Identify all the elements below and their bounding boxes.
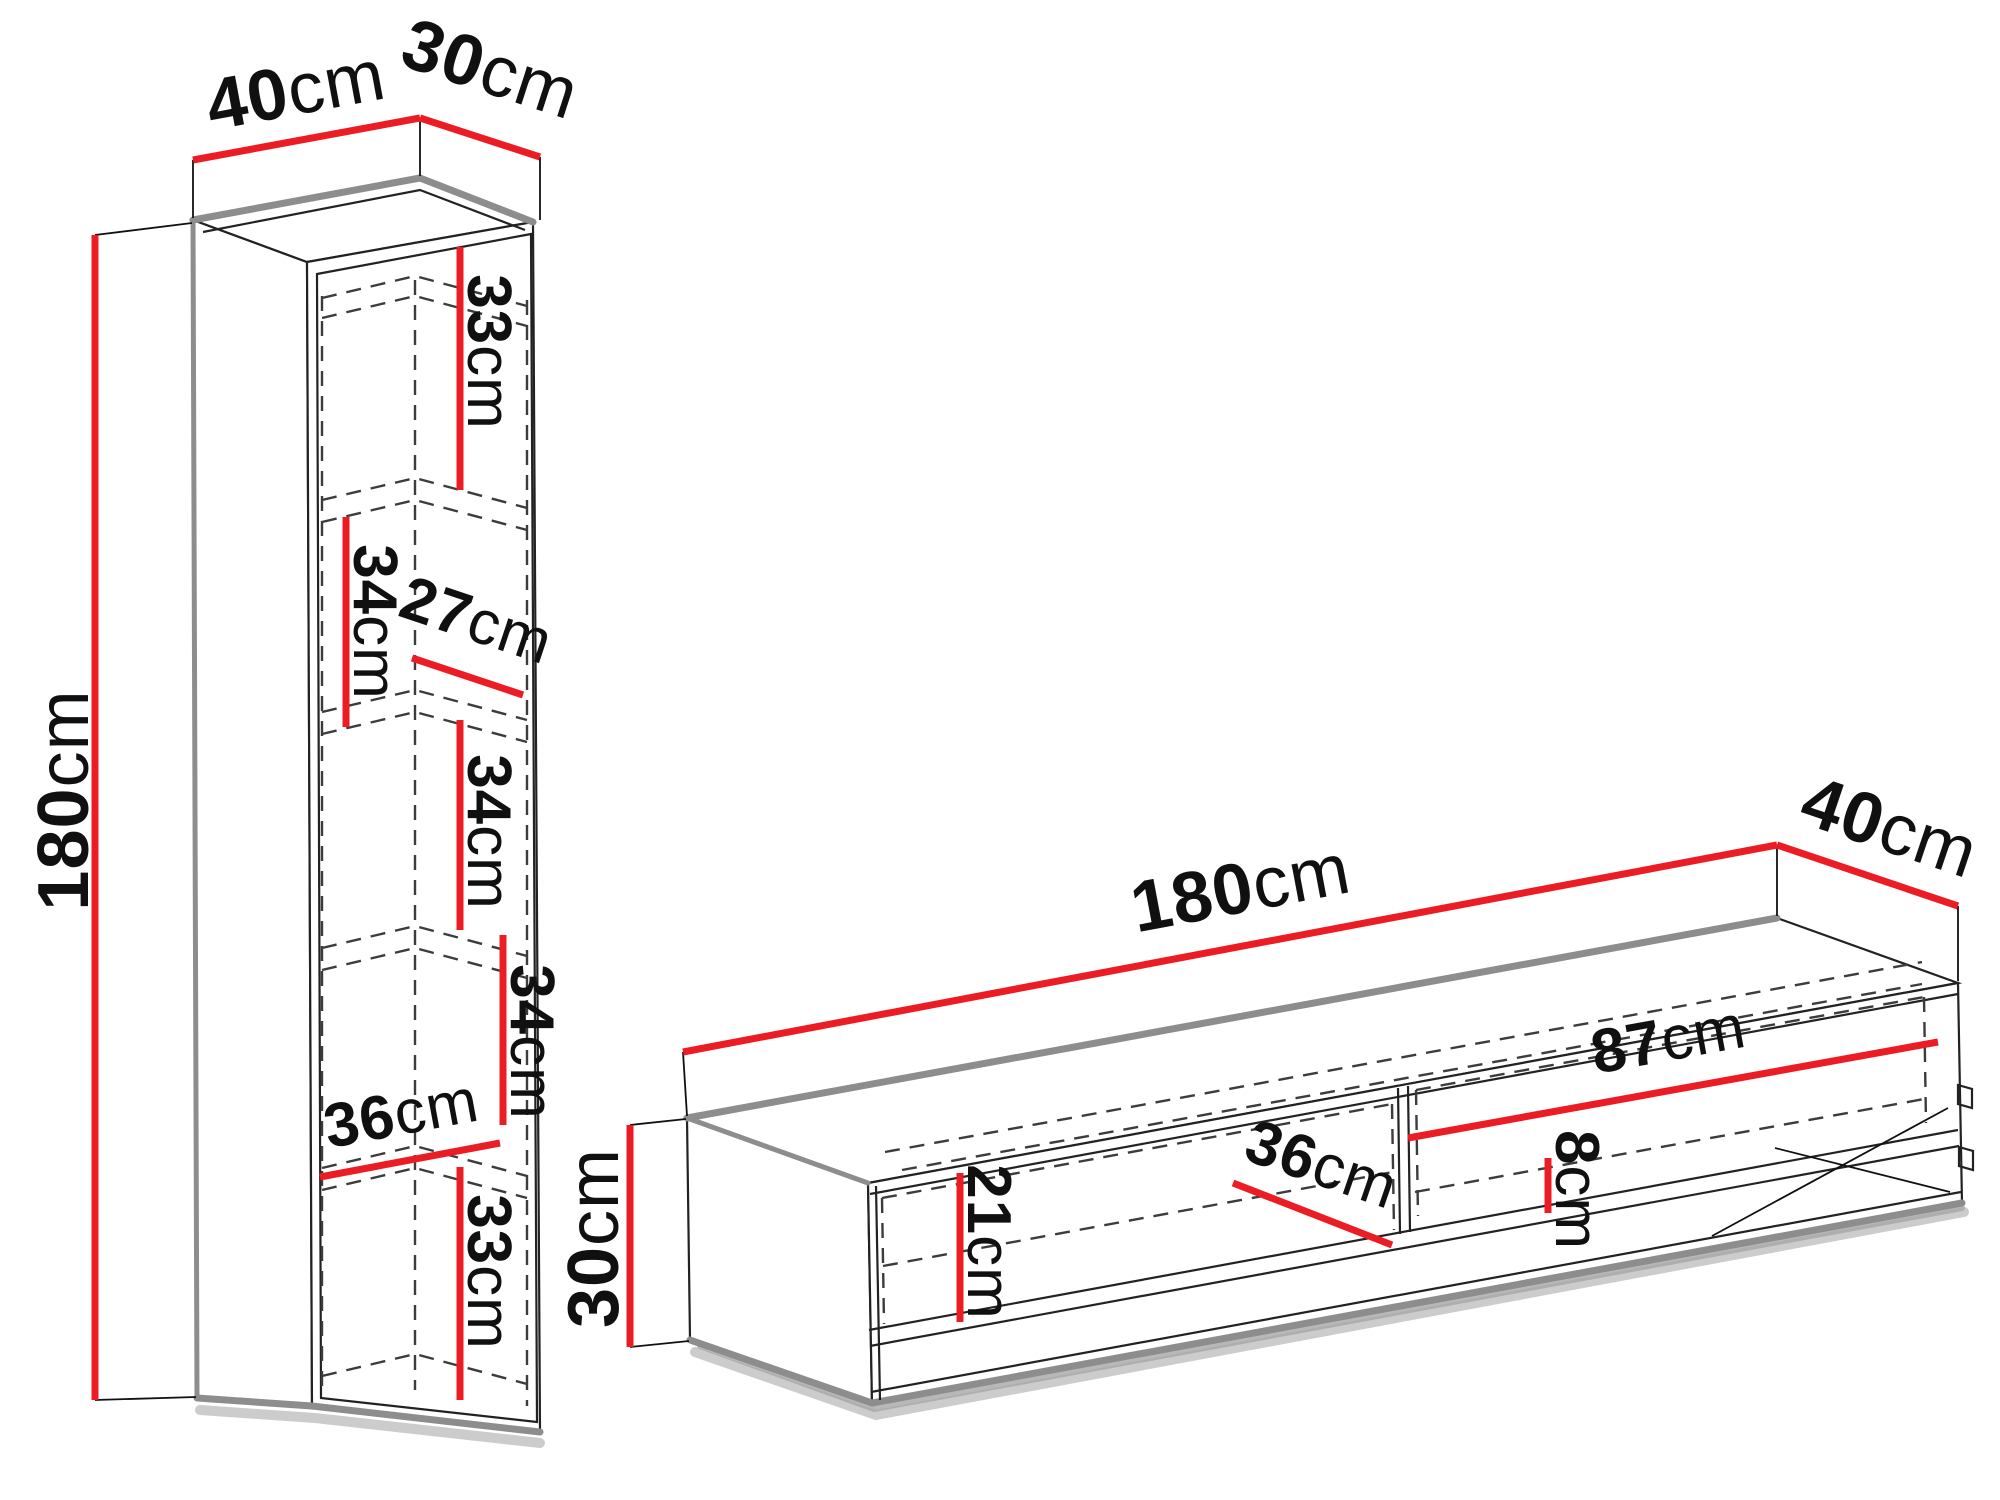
tv-height-label: 30cm <box>554 1148 634 1328</box>
cabinet-left-side-panel <box>193 220 312 1406</box>
cabinet-compartment-1-label: 33cm <box>454 274 523 430</box>
furniture-dimensions-diagram: 40cm 30cm 180cm 33cm 34cm 27cm 34cm 34cm… <box>0 0 2000 1500</box>
cabinet-height-tick-bottom <box>95 1397 196 1400</box>
cabinet-depth-dimension-line <box>420 118 540 157</box>
cabinet-compartment-4-label: 34cm <box>497 964 566 1120</box>
tv-height-tick-top <box>630 1119 686 1125</box>
diagram-canvas: 40cm 30cm 180cm 33cm 34cm 27cm 34cm 34cm… <box>0 0 2000 1500</box>
tv-stand-drawing: 180cm 40cm 30cm 87cm 8cm 36cm 21cm <box>554 761 1988 1415</box>
cabinet-height-tick-top <box>95 223 192 235</box>
tall-cabinet-drawing: 40cm 30cm 180cm 33cm 34cm 27cm 34cm 34cm… <box>24 3 588 1443</box>
tv-niche-height-label: 21cm <box>954 1164 1023 1320</box>
cabinet-height-label: 180cm <box>24 689 104 910</box>
tv-width-tick-left <box>683 1052 687 1116</box>
tv-height-tick-bottom <box>630 1341 689 1347</box>
tv-slot-height-label: 8cm <box>1542 1130 1611 1250</box>
cabinet-compartment-5-label: 33cm <box>454 1194 523 1350</box>
tv-depth-label: 40cm <box>1792 761 1988 894</box>
cabinet-compartment-3-label: 34cm <box>454 754 523 910</box>
